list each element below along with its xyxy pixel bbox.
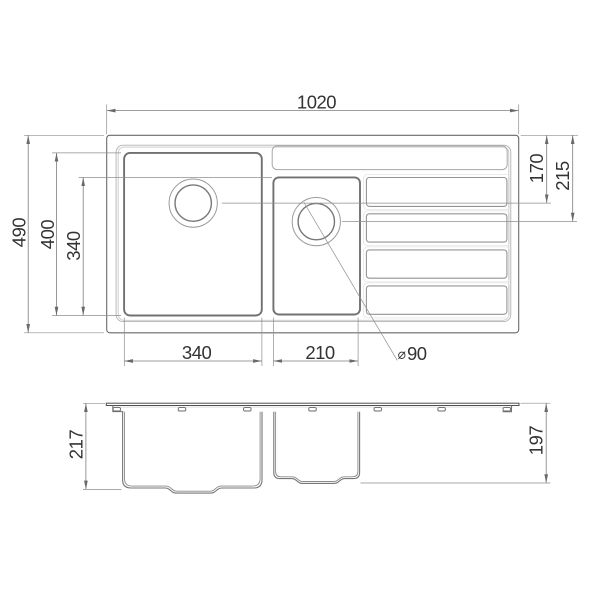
svg-text:340: 340: [182, 342, 212, 363]
svg-text:490: 490: [9, 218, 30, 248]
svg-text:215: 215: [552, 161, 573, 191]
svg-text:1020: 1020: [297, 92, 336, 113]
svg-text:90: 90: [407, 343, 427, 364]
svg-text:400: 400: [37, 220, 58, 250]
svg-text:170: 170: [526, 154, 547, 184]
svg-text:217: 217: [65, 430, 86, 460]
svg-text:340: 340: [63, 231, 84, 261]
svg-text:210: 210: [305, 342, 335, 363]
svg-text:197: 197: [526, 426, 547, 456]
